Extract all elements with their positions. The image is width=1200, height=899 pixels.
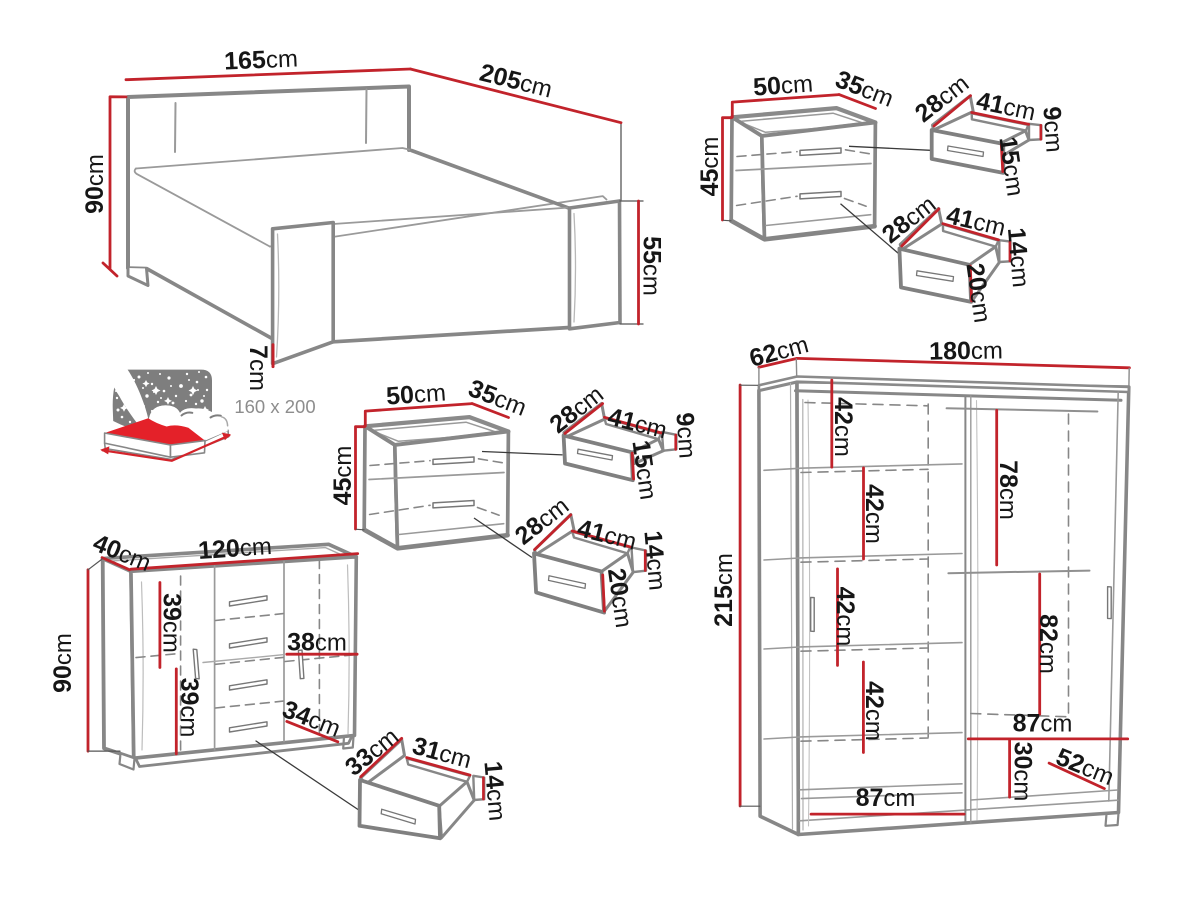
svg-text:87cm: 87cm: [1013, 710, 1073, 738]
svg-text:7cm: 7cm: [244, 345, 272, 391]
svg-text:87cm: 87cm: [856, 784, 916, 812]
svg-text:180cm: 180cm: [929, 336, 1003, 365]
svg-text:82cm: 82cm: [1034, 614, 1062, 674]
svg-text:9cm: 9cm: [1037, 106, 1068, 154]
svg-text:120cm: 120cm: [197, 532, 272, 565]
svg-text:90cm: 90cm: [81, 154, 109, 214]
svg-text:42cm: 42cm: [860, 681, 888, 741]
svg-text:38cm: 38cm: [287, 629, 347, 657]
svg-text:39cm: 39cm: [175, 678, 203, 738]
svg-text:42cm: 42cm: [860, 484, 888, 544]
svg-text:55cm: 55cm: [638, 236, 666, 296]
svg-text:30cm: 30cm: [1009, 742, 1037, 802]
svg-text:9cm: 9cm: [670, 412, 701, 460]
svg-text:14cm: 14cm: [638, 529, 671, 591]
svg-text:90cm: 90cm: [49, 633, 77, 693]
svg-text:14cm: 14cm: [478, 760, 511, 822]
svg-text:78cm: 78cm: [994, 460, 1022, 520]
svg-text:14cm: 14cm: [1002, 226, 1035, 288]
svg-text:39cm: 39cm: [158, 593, 186, 653]
svg-text:42cm: 42cm: [829, 397, 857, 457]
svg-text:165cm: 165cm: [224, 44, 299, 75]
svg-text:160 x 200: 160 x 200: [234, 396, 315, 417]
svg-text:42cm: 42cm: [831, 587, 859, 647]
svg-text:215cm: 215cm: [710, 553, 738, 627]
